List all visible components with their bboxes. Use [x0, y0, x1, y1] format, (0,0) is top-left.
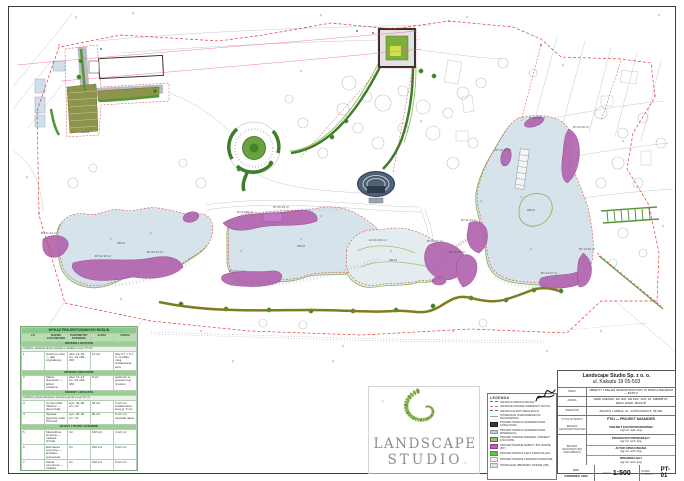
survey-cross-icon: × — [232, 359, 235, 365]
company-address: ul. Kakadu 19 05-503 — [558, 379, 675, 385]
title-block-row: TEMATOBIEKTY I ZIELEŃ INFRASTRUKTURY W P… — [558, 388, 675, 398]
survey-cross-icon: × — [600, 329, 603, 335]
survey-cross-icon: × — [381, 399, 384, 405]
row-value: MIASTO I GMINA, UL. KOŚCIUSZKI 5, 05-500 — [587, 407, 675, 415]
company-header: Landscape Studio Sp. z o. o. ul. Kakadu … — [558, 371, 675, 388]
title-block-bottom-row: DATA CZERWIEC 2022 SKALA 1:500 NUMER RYS… — [558, 465, 675, 481]
survey-cross-icon: × — [240, 249, 243, 255]
team-block: BRANŻA ARCHITEKTURA KRAJOBRAZUPROJEKTANT… — [558, 435, 675, 465]
legend-item-label: Projektowane drzewa i krzewy liściaste — [500, 436, 554, 442]
legend-item: Projektowane drzewa i krzewy liściaste — [490, 436, 554, 442]
survey-cross-icon: × — [320, 214, 323, 220]
legend-item-label: Projektowana nawierzchnia asfaltowa — [500, 421, 554, 427]
team-entry: SPRAWDZAJĄCYmgr inż. arch. kraj. — [587, 456, 675, 465]
survey-cross-icon: × — [120, 297, 123, 303]
row-label: ADRES — [558, 397, 587, 406]
survey-cross-icon: × — [448, 19, 451, 25]
survey-cross-icon: × — [150, 231, 153, 237]
legend-item: Projektowana łąka kwietna (ŁK) — [490, 451, 554, 456]
legend-panel: LEGENDA Granica opracowaniaGranice dział… — [487, 393, 557, 480]
plan-area-label: BY.02 96 m² — [95, 254, 111, 258]
plan-area-label: ZB.04 — [527, 208, 535, 212]
team-entry: PROJEKT ZAGOSPODAROWANIAmgr inż. arch. k… — [587, 424, 675, 434]
survey-cross-icon: × — [58, 43, 61, 49]
survey-cross-icon: × — [132, 11, 135, 17]
purple-swatch — [490, 444, 498, 449]
survey-cross-icon: × — [300, 237, 303, 243]
green-tex-swatch — [490, 437, 498, 442]
title-block: Landscape Studio Sp. z o. o. ul. Kakadu … — [557, 370, 676, 474]
table-header-row: LP.NAZWA GATUNKOWAPARAMETRY SADZENIAILOŚ… — [22, 333, 137, 341]
legend-item: Granica etapu realizacji — [490, 410, 554, 413]
survey-cross-icon: × — [562, 63, 565, 69]
table-row: 2Malus 'Evereste' — jabłoń ozdobnaobw. 1… — [22, 375, 137, 390]
title-block-row: TYTUŁ RYSUNKUPT01 — PROJEKT NASADZEŃ — [558, 416, 675, 424]
row-label: TYTUŁ RYSUNKU — [558, 416, 587, 424]
table-row: 6Echinacea purpurea — jeżówka purpurowaC… — [22, 445, 137, 460]
survey-cross-icon: × — [200, 329, 203, 335]
survey-cross-icon: × — [300, 69, 303, 75]
grey-line-swatch — [490, 416, 498, 417]
survey-cross-icon: × — [420, 119, 423, 125]
legend-item-label: Granica etapu realizacji — [500, 410, 554, 413]
legend-item-label: Projektowane rabaty bylinowe (BY) — [500, 444, 554, 450]
team-entry: AUTOR OPRACOWANIAmgr inż. arch. kraj. — [587, 446, 675, 456]
survey-cross-icon: × — [658, 13, 661, 19]
drawing-number-cell: NUMER RYSUNKU PT-01 — [640, 465, 675, 481]
legend-item: Projektowane rabaty bylinowe (BY) — [490, 444, 554, 450]
row-value: OBIEKTY I ZIELEŃ INFRASTRUKTURY W PARKU … — [587, 388, 675, 397]
survey-cross-icon: × — [464, 461, 467, 467]
legend-item: Projektowana nawierzchnia mineralna — [490, 429, 554, 435]
title-block-row: ADRESPARK MIEJSKI, DZ. EW. NR 15/2, 15/3… — [558, 397, 675, 407]
row-value: PT01 — PROJEKT NASADZEŃ — [587, 416, 675, 424]
survey-cross-icon: × — [38, 211, 41, 217]
road-and-parking — [35, 47, 163, 135]
table-row: 4Spiraea japonica 'Little Princess'wys. … — [22, 412, 137, 424]
number-label: NUMER RYSUNKU — [641, 470, 659, 476]
plan-area-label: BY.05 35 m² — [273, 205, 289, 209]
team-block-label: BRANŻA ARCHITEKTONICZNA — [558, 424, 587, 434]
plan-area-label: BY.12 52 m² — [449, 250, 465, 254]
logo-line1: LANDSCAPE — [373, 436, 476, 452]
legend-item-label: Projektowane trawniki parkowe — [500, 458, 554, 461]
survey-cross-icon: × — [480, 199, 483, 205]
black-swatch — [490, 422, 498, 427]
survey-cross-icon: × — [622, 139, 625, 145]
survey-cross-icon: × — [320, 13, 323, 19]
date-label: DATA — [573, 469, 579, 472]
scale-label: SKALA — [603, 472, 611, 475]
survey-cross-icon: × — [520, 195, 523, 201]
pale-swatch — [490, 457, 498, 462]
logo-line2: STUDIO — [388, 452, 463, 468]
signature-mark — [534, 386, 558, 406]
table-row: 3Cornus alba 'Sibirica' — dereń białywys… — [22, 401, 137, 413]
grey-swatch — [490, 430, 498, 435]
team-block-label: BRANŻA ARCHITEKTURA KRAJOBRAZU — [558, 435, 587, 465]
plan-area-label: BY.11 44 m² — [461, 218, 477, 222]
legend-item-label: Projektowana łąka kwietna (ŁK) — [500, 452, 554, 455]
plan-area-label: ŁK.01 420 m² — [369, 238, 387, 242]
survey-cross-icon: × — [654, 93, 657, 99]
plan-area-label: BY.14 39 m² — [579, 247, 595, 251]
red-dash-swatch — [490, 401, 498, 402]
survey-cross-icon: × — [342, 344, 345, 350]
date-cell: DATA CZERWIEC 2022 — [558, 465, 595, 481]
plan-area-label: ZB.03 — [389, 258, 397, 262]
row-label: TEMAT — [558, 388, 587, 397]
legend-item: Projektowana nawierzchnia asfaltowa — [490, 421, 554, 427]
drawing-sheet: { "logo": { "line1": "LANDSCAPE", "line2… — [0, 0, 684, 480]
plant-schedule-table: WYKAZ PROJEKTOWANYCH ROŚLINLP.NAZWA GATU… — [20, 326, 138, 471]
row-value: PARK MIEJSKI, DZ. EW. NR 15/2, 15/3, 16,… — [587, 397, 675, 406]
table-row: 5Miscanthus sinensis — miskant chińskiC2… — [22, 430, 137, 445]
plan-area-label: BY.03 54 m² — [147, 250, 163, 254]
survey-cross-icon: × — [546, 349, 549, 355]
water-swatch — [490, 463, 498, 468]
landscape-studio-logo: × × LANDSCAPE STUDIO — [368, 386, 480, 474]
bright-green-swatch — [490, 451, 498, 456]
table-row: 1Quercus robur — dąb szypułkowyobw. 14–1… — [22, 352, 137, 370]
legend-item: Projektowane trawniki parkowe — [490, 457, 554, 462]
legend-item-label: Istniejące zbiorniki wodne (ZB) — [500, 464, 554, 467]
title-block-row: INWESTORMIASTO I GMINA, UL. KOŚCIUSZKI 5… — [558, 407, 675, 416]
scale-cell: SKALA 1:500 — [595, 465, 640, 481]
survey-cross-icon: × — [26, 175, 29, 181]
legend-item-label: Istniejące ogrodzenie do zachowania — [500, 414, 554, 420]
pink-dash-swatch — [490, 406, 498, 407]
team-block: BRANŻA ARCHITEKTONICZNAPROJEKT ZAGOSPODA… — [558, 424, 675, 435]
plan-area-label: BY.10 31 m² — [495, 148, 511, 152]
leaf-spiral-icon — [404, 388, 435, 422]
date-value: CZERWIEC 2022 — [564, 474, 587, 478]
survey-cross-icon: × — [530, 247, 533, 253]
survey-cross-icon: × — [452, 329, 455, 335]
survey-cross-icon: × — [75, 15, 78, 21]
legend-item: Istniejące ogrodzenie do zachowania — [490, 414, 554, 420]
plan-area-label: ZB.02 — [297, 244, 305, 248]
plan-area-label: BY.13 67 m² — [541, 271, 557, 275]
plan-area-label: BY.09 58 m² — [573, 125, 589, 129]
plan-area-label: BY.01 42 m² — [41, 231, 57, 235]
team-entry: PROJEKTANT PROWADZĄCYmgr inż. arch. kraj… — [587, 435, 675, 445]
survey-cross-icon: × — [332, 359, 335, 365]
plan-area-label: BY.06 61 m² — [229, 269, 245, 273]
survey-cross-icon: × — [390, 249, 393, 255]
legend-item-label: Projektowana nawierzchnia mineralna — [500, 429, 554, 435]
number-value: PT-01 — [661, 467, 674, 479]
green-dash-swatch — [490, 410, 498, 411]
legend-item: Istniejące zbiorniki wodne (ZB) — [490, 463, 554, 468]
table-row: 7Salvia nemorosa — szałwia omszonaC1318 … — [22, 460, 137, 471]
plan-area-label: BY.07 73 m² — [427, 239, 443, 243]
plan-area-label: ZB.01 — [117, 241, 125, 245]
plan-area-label: BY.04 88 m² — [237, 210, 253, 214]
survey-cross-icon: × — [110, 237, 113, 243]
survey-cross-icon: × — [662, 224, 665, 230]
row-label: INWESTOR — [558, 407, 587, 415]
scale-value: 1:500 — [613, 470, 631, 477]
survey-cross-icon: × — [466, 15, 469, 21]
plan-area-label: BY.08 26 m² — [529, 116, 545, 120]
